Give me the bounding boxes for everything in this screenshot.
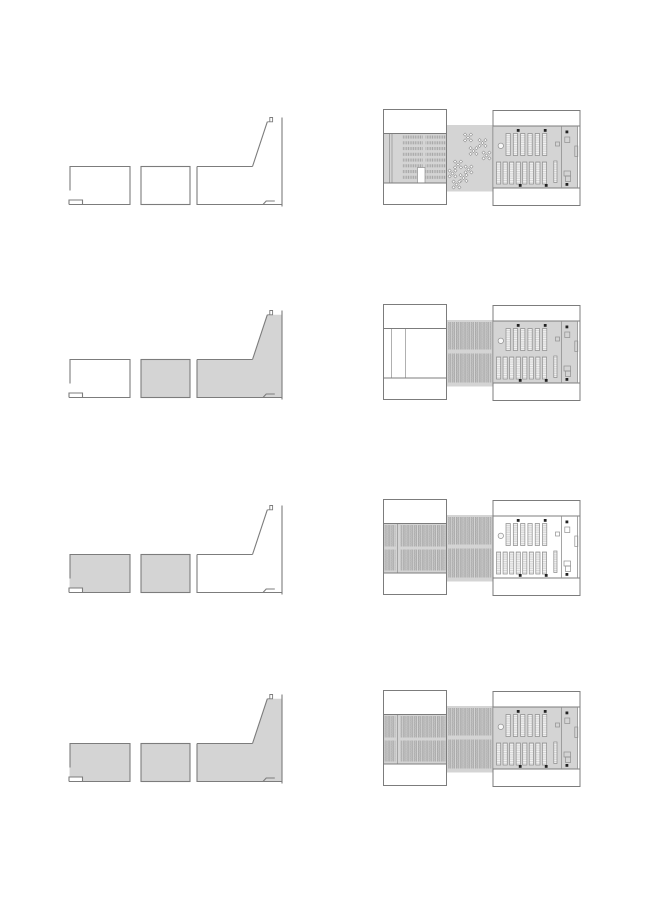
column-dot: [545, 184, 548, 187]
column-dot: [517, 710, 520, 713]
shelf-strip: [516, 357, 520, 379]
plan-view-phase-4: [384, 691, 581, 787]
shelf-strip: [516, 552, 520, 574]
column-circle: [498, 143, 503, 148]
diagram-page: [0, 0, 650, 919]
shelf-strip: [536, 357, 540, 379]
shelf-strip: [528, 524, 532, 546]
shelf-strip: [513, 134, 517, 156]
section-left-fill: [70, 744, 131, 782]
left-band-lines: [384, 329, 447, 379]
seat-row: [426, 141, 447, 144]
right-divider-lines: [562, 516, 578, 578]
shelf-strip: [529, 743, 533, 765]
stack-band: [385, 550, 396, 571]
column-dot: [519, 184, 522, 187]
shelf-strip: [543, 329, 547, 351]
shelf-strip: [503, 743, 507, 765]
stack-band: [448, 708, 492, 736]
column-dot: [544, 129, 547, 132]
small-square: [556, 532, 560, 536]
phase-row-3: [69, 500, 580, 596]
section-left-plinth: [69, 588, 83, 593]
furniture-rect: [566, 566, 571, 572]
seat-row: [403, 164, 424, 167]
shelf-strip: [535, 329, 539, 351]
column-dot: [566, 712, 569, 715]
stack-band: [401, 550, 446, 571]
section-left-room: [69, 360, 130, 398]
plan-view-phase-2: [384, 305, 581, 401]
section-left-plinth: [69, 777, 83, 782]
shelf-strip: [497, 552, 501, 574]
furniture-rect: [564, 561, 571, 566]
section-left-plinth: [69, 200, 83, 205]
shelf-strip: [497, 743, 501, 765]
phase-row-4: [69, 691, 580, 787]
shelf-strip: [543, 134, 547, 156]
column-dot: [545, 765, 548, 768]
section-right-parapet: [267, 695, 272, 699]
section-view-phase-1: [69, 118, 282, 207]
shelf-strip: [521, 329, 525, 351]
shelf-strip: [542, 743, 546, 765]
stack-band: [448, 322, 492, 350]
shelf-strip: [506, 329, 510, 351]
section-left-room: [69, 167, 130, 205]
column-dot: [517, 324, 520, 327]
shelf-strip: [542, 357, 546, 379]
empty-hall-walls: [392, 329, 406, 379]
shelf-strip: [536, 162, 540, 184]
column-dot: [517, 519, 520, 522]
section-right-parapet: [267, 311, 272, 315]
shelf-strip: [543, 524, 547, 546]
shelf-strip: [521, 134, 525, 156]
plan-view-phase-3: [384, 500, 581, 596]
shelf-strip: [513, 524, 517, 546]
shelf-strip: [513, 329, 517, 351]
section-middle-room: [141, 360, 190, 398]
side-corridor-furniture: [564, 527, 578, 572]
stack-band: [385, 525, 396, 547]
shelf-strip: [528, 329, 532, 351]
section-view-phase-3: [69, 506, 282, 595]
shelf-strip: [521, 715, 525, 737]
column-dot: [545, 379, 548, 382]
column-dot: [566, 378, 569, 381]
furniture-rect: [565, 527, 570, 533]
shelf-strip: [523, 357, 527, 379]
stage-door: [418, 168, 426, 184]
column-dot: [566, 573, 569, 576]
shelf-strip-narrow: [554, 356, 557, 378]
section-middle-room: [141, 167, 190, 205]
shelf-strip: [503, 162, 507, 184]
phasing-diagram-canvas: [0, 0, 650, 919]
shelf-strip: [536, 743, 540, 765]
shelf-strip: [535, 134, 539, 156]
left-hall-content: [392, 329, 406, 379]
shelf-strip: [497, 162, 501, 184]
shelf-strip: [521, 524, 525, 546]
shelf-strip: [543, 715, 547, 737]
column-circle: [498, 338, 503, 343]
section-view-phase-4: [69, 695, 282, 784]
right-hall-content: [497, 519, 578, 577]
shelf-strip: [503, 357, 507, 379]
shelf-strip: [510, 552, 514, 574]
shelf-strip-narrow: [554, 742, 557, 764]
section-right-fill: [197, 315, 282, 398]
column-dot: [566, 764, 569, 767]
shelf-strip: [528, 715, 532, 737]
section-right-floor: [197, 167, 282, 205]
column-dot: [566, 131, 569, 134]
seat-row: [426, 147, 447, 150]
shelf-strip: [510, 357, 514, 379]
shelf-strip: [510, 743, 514, 765]
shelf-strip: [497, 357, 501, 379]
seat-row: [403, 147, 424, 150]
left-hall-fill: [384, 134, 447, 184]
shelf-strip: [535, 715, 539, 737]
column-dot: [566, 183, 569, 186]
column-dot: [544, 710, 547, 713]
column-dot: [544, 519, 547, 522]
section-right-parapet: [267, 506, 272, 510]
phase-row-1: [69, 110, 580, 207]
section-outlines: [69, 118, 282, 207]
left-block-outline: [384, 305, 447, 400]
shelf-strip: [528, 134, 532, 156]
stack-band: [401, 716, 446, 738]
seat-row: [426, 136, 447, 139]
seat-row: [426, 159, 447, 162]
seat-row: [426, 176, 447, 179]
column-circle: [498, 724, 503, 729]
stack-band: [448, 354, 492, 383]
column-dot: [519, 765, 522, 768]
column-dot: [544, 324, 547, 327]
shelf-strip: [516, 743, 520, 765]
shelf-strip: [542, 162, 546, 184]
stack-band: [448, 549, 492, 578]
stack-band: [385, 741, 396, 762]
stack-band: [385, 716, 396, 738]
column-circle: [498, 533, 503, 538]
section-right-parapet: [267, 118, 272, 122]
section-right-floor: [197, 555, 282, 593]
section-right-rake: [253, 510, 268, 555]
shelf-strip: [506, 715, 510, 737]
shelf-strip-narrow: [554, 161, 557, 183]
shelf-strip: [513, 715, 517, 737]
section-left-plinth: [69, 393, 83, 398]
section-left-fill: [70, 555, 131, 593]
shelf-strip: [536, 552, 540, 574]
plan-view-phase-1: [384, 110, 581, 206]
stack-band: [448, 740, 492, 769]
shelf-strip: [529, 552, 533, 574]
stack-band: [448, 517, 492, 545]
column-dot: [566, 521, 569, 524]
section-right-rake: [253, 122, 268, 167]
shelf-strip: [523, 552, 527, 574]
shelf-strip: [535, 524, 539, 546]
shelf-strip: [542, 552, 546, 574]
shelf-strip: [503, 552, 507, 574]
shelf-strip-narrow: [554, 551, 557, 573]
seat-row: [403, 159, 424, 162]
column-dot: [519, 379, 522, 382]
shelf-strip: [523, 743, 527, 765]
shelf-strip: [516, 162, 520, 184]
column-dot: [519, 574, 522, 577]
section-view-phase-2: [69, 311, 282, 400]
seat-row: [426, 153, 447, 156]
column-dot: [566, 326, 569, 329]
column-dot: [545, 574, 548, 577]
column-dot: [517, 129, 520, 132]
stack-band: [401, 741, 446, 762]
seat-row: [403, 136, 424, 139]
shelf-strip: [529, 357, 533, 379]
phase-row-2: [69, 305, 580, 401]
stack-band: [401, 525, 446, 547]
shelf-strip: [529, 162, 533, 184]
section-right-fill: [197, 699, 282, 782]
seat-row: [426, 164, 447, 167]
shelf-strip: [506, 524, 510, 546]
shelf-strip: [506, 134, 510, 156]
seat-row: [403, 141, 424, 144]
section-middle-room: [141, 744, 190, 782]
shelf-strip: [510, 162, 514, 184]
seat-row: [426, 170, 447, 173]
right-block-outline: [493, 501, 580, 596]
shelf-strip: [523, 162, 527, 184]
section-middle-room: [141, 555, 190, 593]
seat-row: [403, 153, 424, 156]
